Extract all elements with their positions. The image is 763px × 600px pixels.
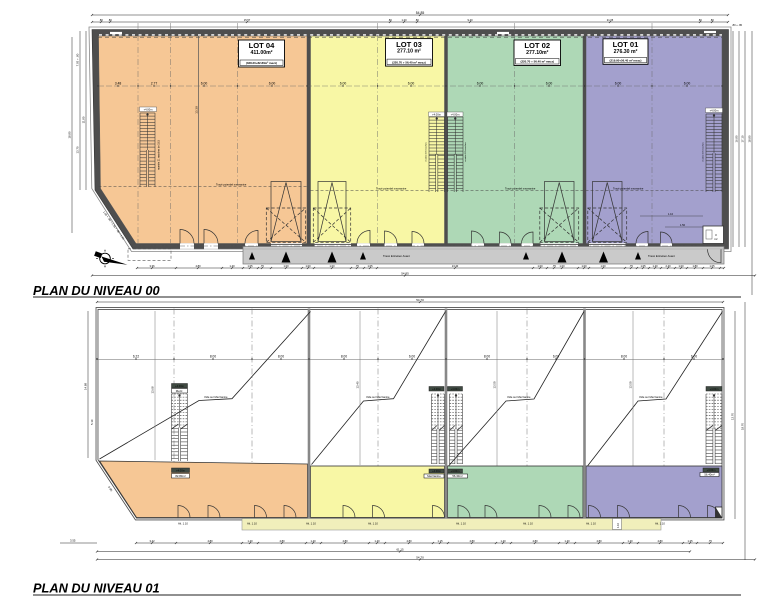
svg-text:8.00: 8.00	[278, 355, 284, 359]
svg-text:4.80: 4.80	[406, 539, 412, 543]
svg-text:(220.70 + 56.40 m² mezz): (220.70 + 56.40 m² mezz)	[520, 60, 554, 64]
svg-text:Vide sur Mezzanine: Vide sur Mezzanine	[366, 395, 390, 399]
svg-text:6.00: 6.00	[269, 82, 276, 86]
svg-text:1.40: 1.40	[500, 539, 506, 543]
svg-text:3.48: 3.48	[115, 82, 122, 86]
svg-text:+4.00m: +4.00m	[707, 468, 716, 472]
svg-text:.80: .80	[388, 18, 392, 22]
svg-text:18.70: 18.70	[741, 423, 745, 430]
svg-text:.75: .75	[355, 264, 359, 268]
svg-text:+4.00m: +4.00m	[432, 469, 441, 473]
svg-text:13.70: 13.70	[731, 413, 735, 420]
svg-text:+4.00m: +4.00m	[451, 387, 460, 391]
svg-text:1.00: 1.00	[329, 264, 335, 268]
svg-text:Vide sur Mezzanine: Vide sur Mezzanine	[507, 395, 531, 399]
svg-text:Alt. 1.10: Alt. 1.10	[247, 522, 257, 526]
svg-text:6.00: 6.00	[546, 82, 553, 86]
svg-text:1.80: 1.80	[692, 264, 698, 268]
svg-text:Alt. 1.10: Alt. 1.10	[655, 522, 665, 526]
svg-text:4.80: 4.80	[342, 539, 348, 543]
svg-text:+4.00m: +4.00m	[432, 387, 441, 391]
svg-text:277.10 m²: 277.10 m²	[397, 49, 421, 55]
svg-text:6.00: 6.00	[477, 82, 484, 86]
svg-text:8.00: 8.00	[210, 355, 216, 359]
svg-text:1.40: 1.40	[229, 264, 235, 268]
svg-text:PLAN DU NIVEAU 00: PLAN DU NIVEAU 00	[33, 283, 160, 298]
svg-text:Vide sur Mezzanine: Vide sur Mezzanine	[639, 395, 663, 399]
svg-text:13.68: 13.68	[151, 386, 155, 393]
svg-text:4.80: 4.80	[207, 539, 213, 543]
svg-text:1.10: 1.10	[668, 212, 674, 216]
svg-text:Tracé potentiel mezzanine: Tracé potentiel mezzanine	[216, 183, 247, 187]
svg-text:3.55: 3.55	[70, 539, 76, 543]
svg-text:2.40: 2.40	[665, 264, 671, 268]
svg-text:Alt. 1.10: Alt. 1.10	[368, 522, 378, 526]
svg-text:1.20: 1.20	[401, 18, 407, 22]
svg-text:Alt. 1.10: Alt. 1.10	[523, 522, 533, 526]
svg-text:Tracé potentiel mezzanine: Tracé potentiel mezzanine	[505, 187, 536, 191]
svg-text:1.05: 1.05	[247, 264, 253, 268]
svg-text:6.00: 6.00	[340, 82, 347, 86]
svg-text:276.30 m²: 276.30 m²	[614, 49, 638, 55]
svg-text:.75: .75	[552, 264, 556, 268]
svg-text:56.30m²: 56.30m²	[452, 474, 462, 478]
svg-text:.80: .80	[108, 18, 112, 22]
svg-text:1.00: 1.00	[600, 264, 606, 268]
svg-text:4.80: 4.80	[469, 539, 475, 543]
svg-text:13.70: 13.70	[76, 146, 80, 153]
svg-text:16.80: 16.80	[735, 135, 739, 142]
svg-text:6.00: 6.00	[408, 82, 415, 86]
svg-text:montée 18 marches: montée 18 marches	[702, 141, 705, 161]
svg-text:.80: .80	[99, 18, 103, 22]
svg-text:+4.00m: +4.00m	[432, 113, 441, 117]
svg-text:1.00: 1.00	[305, 264, 311, 268]
svg-text:8.00: 8.00	[341, 355, 347, 359]
svg-text:13.59: 13.59	[629, 381, 633, 388]
svg-text:54.70: 54.70	[416, 555, 424, 559]
svg-text:Tracé Entretien Avant: Tracé Entretien Avant	[383, 254, 410, 258]
svg-text:4.80: 4.80	[195, 264, 201, 268]
svg-text:Alt. 1.10: Alt. 1.10	[456, 522, 466, 526]
svg-text:6.00: 6.00	[409, 355, 415, 359]
svg-text:7.05 + .80: 7.05 + .80	[76, 53, 80, 66]
svg-text:montée 21 marches de 18.5: montée 21 marches de 18.5	[158, 139, 161, 169]
svg-text:.75: .75	[629, 264, 633, 268]
svg-text:+4.00m: +4.00m	[710, 387, 719, 391]
svg-text:Alt. 1.10: Alt. 1.10	[306, 522, 316, 526]
svg-text:1.15: 1.15	[437, 539, 443, 543]
svg-text:LOT 01: LOT 01	[613, 40, 640, 49]
svg-text:1.00: 1.00	[283, 264, 289, 268]
svg-text:Tracé potentiel mezzanine: Tracé potentiel mezzanine	[376, 187, 407, 191]
svg-text:4.80: 4.80	[532, 539, 538, 543]
svg-text:.80: .80	[415, 18, 419, 22]
svg-text:1.00: 1.00	[537, 264, 543, 268]
svg-text:Mezzanine: Mezzanine	[427, 474, 441, 478]
svg-text:1.40: 1.40	[310, 539, 316, 543]
svg-text:13.59: 13.59	[493, 381, 497, 388]
svg-text:13.40: 13.40	[356, 381, 360, 388]
svg-text:+4.00m: +4.00m	[710, 109, 719, 113]
svg-text:56.40m²: 56.40m²	[704, 473, 714, 477]
svg-text:Mezz.: Mezz.	[176, 389, 184, 393]
svg-text:18.80: 18.80	[68, 131, 72, 138]
svg-text:3.36: 3.36	[149, 264, 155, 268]
svg-text:5.10: 5.10	[90, 419, 94, 425]
svg-text:1.40: 1.40	[374, 539, 380, 543]
svg-text:277.10m²: 277.10m²	[526, 50, 548, 56]
svg-text:18.80: 18.80	[748, 135, 752, 142]
svg-text:61.15: 61.15	[397, 547, 404, 551]
svg-text:+4.00m: +4.00m	[176, 469, 185, 473]
svg-text:17.10: 17.10	[741, 135, 745, 142]
svg-text:6.22: 6.22	[133, 355, 139, 359]
svg-text:LOT 02: LOT 02	[524, 41, 550, 50]
svg-text:m²: m²	[714, 237, 718, 241]
svg-text:54.85: 54.85	[401, 271, 409, 275]
svg-text:.80: .80	[698, 18, 702, 22]
svg-text:82.80m²: 82.80m²	[175, 474, 185, 478]
svg-text:1.00: 1.00	[559, 264, 565, 268]
svg-text:+4.00m: +4.00m	[144, 108, 153, 112]
svg-text:PLAN DU NIVEAU 01: PLAN DU NIVEAU 01	[33, 581, 160, 596]
svg-text:LOT 04: LOT 04	[249, 41, 276, 50]
svg-text:1.40: 1.40	[652, 264, 658, 268]
svg-text:+4.00m: +4.00m	[451, 113, 460, 117]
svg-text:15.57: 15.57	[244, 18, 251, 22]
svg-text:14.88: 14.88	[84, 383, 88, 390]
svg-text:1.40: 1.40	[627, 539, 633, 543]
svg-text:1.25: 1.25	[687, 539, 693, 543]
svg-text:8.00: 8.00	[484, 355, 490, 359]
svg-text:(220.70 + 56.40 m² mezz): (220.70 + 56.40 m² mezz)	[392, 60, 426, 64]
svg-text:9.40: 9.40	[467, 18, 473, 22]
svg-text:6.00: 6.00	[615, 82, 622, 86]
svg-text:Tracé potentiel mezzanine: Tracé potentiel mezzanine	[613, 187, 644, 191]
svg-text:(328.20+82.80m² mezz): (328.20+82.80m² mezz)	[246, 61, 277, 65]
svg-text:4.80: 4.80	[657, 539, 663, 543]
svg-text:1.40: 1.40	[247, 539, 253, 543]
svg-text:2.77: 2.77	[151, 82, 158, 86]
svg-text:.80 + .80: .80 + .80	[732, 23, 743, 27]
svg-text:54.70: 54.70	[416, 298, 424, 302]
svg-text:1.40: 1.40	[564, 539, 570, 543]
svg-text:+4.00m: +4.00m	[175, 384, 184, 388]
svg-text:6.00: 6.00	[201, 82, 208, 86]
svg-text:3.42: 3.42	[149, 539, 155, 543]
svg-text:Vide sur Mezzanine: Vide sur Mezzanine	[204, 395, 228, 399]
svg-text:Tracé Entretien Avant: Tracé Entretien Avant	[648, 254, 675, 258]
svg-text:1.00: 1.00	[581, 264, 587, 268]
svg-text:LOT 03: LOT 03	[396, 40, 422, 49]
svg-text:.80: .80	[710, 18, 714, 22]
svg-text:Alt. 1.10: Alt. 1.10	[178, 522, 188, 526]
svg-text:1.10: 1.10	[616, 522, 620, 528]
svg-text:1.50: 1.50	[680, 223, 686, 227]
svg-text:1.05: 1.05	[709, 264, 715, 268]
svg-text:1.05: 1.05	[640, 264, 646, 268]
svg-text:Alt. 1.10: Alt. 1.10	[586, 522, 596, 526]
svg-text:.75: .75	[260, 264, 264, 268]
svg-text:21.05: 21.05	[607, 18, 614, 22]
svg-text:13.39: 13.39	[195, 106, 199, 114]
svg-text:13.40: 13.40	[452, 264, 459, 268]
svg-text:4.80: 4.80	[279, 539, 285, 543]
svg-text:11.80: 11.80	[82, 116, 86, 123]
svg-text:4.80: 4.80	[596, 539, 602, 543]
svg-text:+4.00m: +4.00m	[451, 469, 460, 473]
svg-text:.75: .75	[708, 539, 712, 543]
svg-text:montée 18 marches: montée 18 marches	[464, 141, 467, 161]
svg-text:8.00: 8.00	[621, 355, 627, 359]
svg-text:(219.90+56.40 m² mezz): (219.90+56.40 m² mezz)	[610, 59, 642, 63]
svg-text:1.05: 1.05	[367, 264, 373, 268]
svg-text:6.00: 6.00	[684, 82, 691, 86]
svg-text:1.00: 1.00	[678, 264, 684, 268]
svg-text:54.85: 54.85	[416, 11, 425, 15]
svg-text:montée 18 marches: montée 18 marches	[425, 141, 428, 161]
svg-text:411.00m²: 411.00m²	[251, 50, 273, 56]
